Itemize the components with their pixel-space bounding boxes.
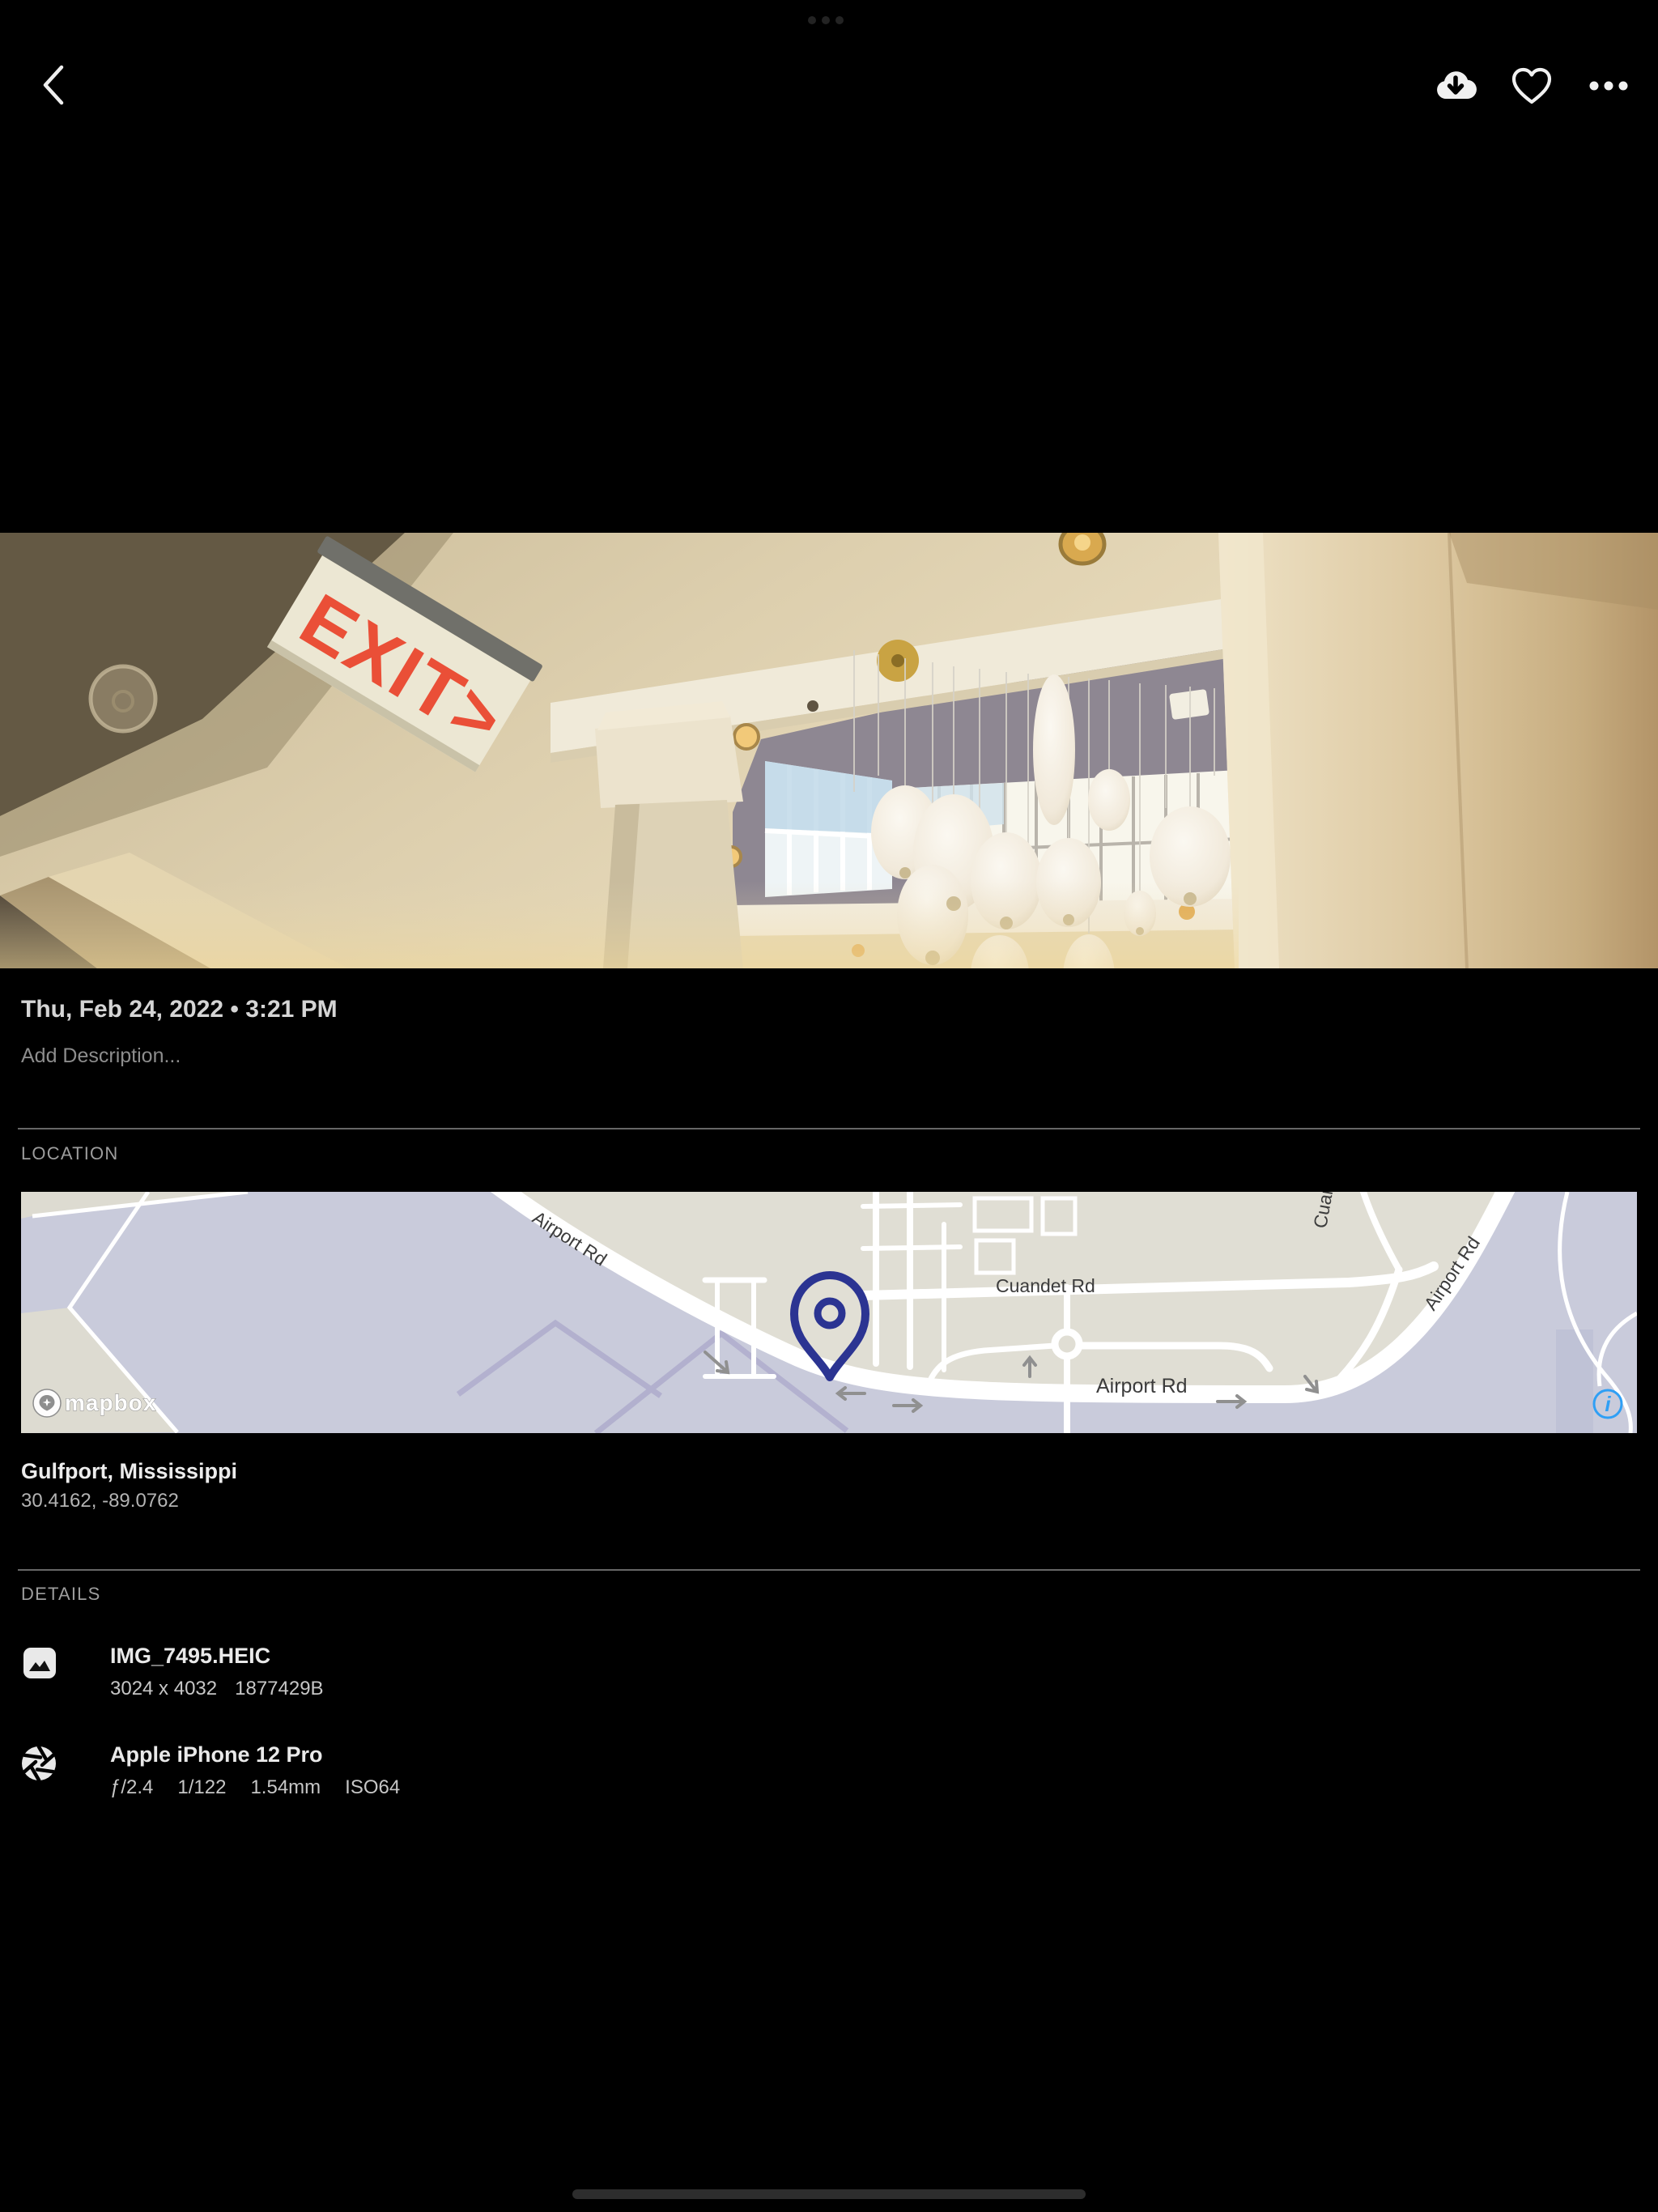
camera-name: Apple iPhone 12 Pro (110, 1742, 323, 1767)
camera-focal-length: 1.54mm (250, 1776, 321, 1798)
favorite-button[interactable] (1507, 63, 1556, 108)
map-canvas: Airport Rd Cuandet Rd Airport Rd Airport… (21, 1192, 1637, 1433)
back-button[interactable] (32, 61, 81, 109)
chevron-left-icon (32, 61, 81, 109)
camera-aperture: ƒ/2.4 (110, 1776, 153, 1798)
location-coordinates: 30.4162, -89.0762 (21, 1490, 179, 1512)
cloud-download-icon (1431, 63, 1480, 108)
ceiling-medallion-center (891, 654, 904, 667)
divider (18, 1569, 1640, 1571)
mapbox-wordmark: mapbox (65, 1390, 156, 1415)
map-info-glyph: i (1605, 1392, 1611, 1416)
top-toolbar (0, 0, 1658, 170)
file-dimensions: 3024 x 4032 (110, 1678, 217, 1699)
camera-settings: ƒ/2.41/1221.54mmISO64 (110, 1776, 424, 1799)
heart-outline-icon (1507, 63, 1556, 108)
recessed-light-top-glow (1074, 534, 1090, 551)
description-input[interactable]: Add Description... (21, 1044, 181, 1068)
location-section-header: LOCATION (21, 1143, 118, 1164)
recessed-light-1 (734, 725, 759, 749)
divider (18, 1128, 1640, 1129)
beam-knob (807, 700, 818, 712)
more-options-button[interactable] (1584, 63, 1634, 108)
warm-glow (0, 881, 1239, 968)
details-section-header: DETAILS (21, 1584, 100, 1605)
file-meta: 3024 x 40321877429B (110, 1678, 324, 1700)
file-name: IMG_7495.HEIC (110, 1644, 270, 1669)
mapbox-attribution[interactable]: mapbox (33, 1389, 156, 1417)
photo-detail-screen: EXIT> (0, 0, 1658, 2212)
location-map[interactable]: Airport Rd Cuandet Rd Airport Rd Airport… (21, 1192, 1637, 1433)
photo-image[interactable]: EXIT> (0, 533, 1658, 968)
photo-datetime: Thu, Feb 24, 2022 • 3:21 PM (21, 996, 338, 1023)
camera-aperture-icon (19, 1744, 58, 1787)
location-place: Gulfport, Mississippi (21, 1459, 237, 1484)
map-block-right (1556, 1329, 1593, 1433)
image-file-icon (23, 1647, 57, 1683)
road-label-airport-horizontal: Airport Rd (1096, 1375, 1188, 1397)
file-size: 1877429B (235, 1678, 323, 1699)
camera-iso: ISO64 (345, 1776, 400, 1798)
column-capital (595, 716, 743, 808)
camera-shutter: 1/122 (177, 1776, 226, 1798)
road-label-cuandet: Cuandet Rd (996, 1275, 1095, 1296)
download-button[interactable] (1431, 63, 1480, 108)
ellipsis-horizontal-icon (1584, 63, 1634, 108)
home-indicator[interactable] (572, 2189, 1086, 2199)
